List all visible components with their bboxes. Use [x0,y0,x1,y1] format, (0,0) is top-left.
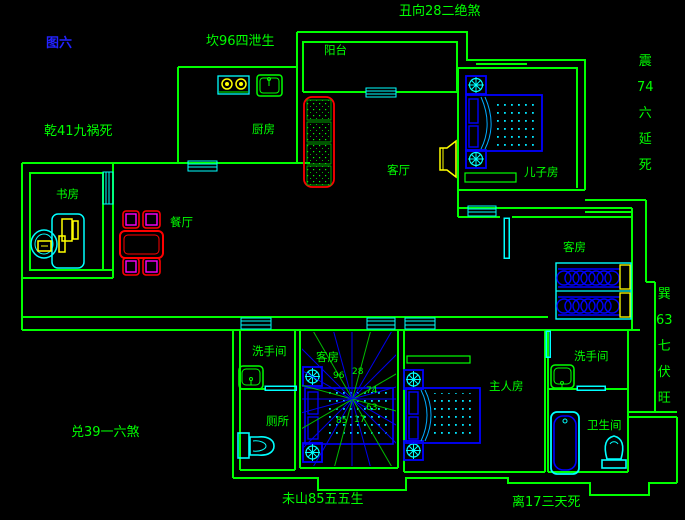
annotation-xun: 巽63七伏旺 [656,288,673,418]
room-label-master-room: 主人房 [489,380,524,393]
hall-window [241,318,271,329]
balcony-window [366,88,396,97]
annotation-wei: 未山85五五生 [282,493,364,507]
sons-room-nightstand [466,76,486,94]
floor-plan-canvas: 图六 丑向28二绝煞 坎96四泄生 乾41九祸死 兑39一六煞 未山85五五生 … [0,0,685,520]
room-label-kitchen: 厨房 [252,123,275,136]
sons-room-dresser [465,173,516,182]
room-label-balcony: 阳台 [324,44,347,57]
sons-room-nightstand [466,150,486,168]
master-bed [406,388,480,443]
dining-chair [123,258,139,275]
bathtub [551,412,579,474]
guest-bed-pillow [620,293,630,317]
annotation-chou-top: 丑向28二绝煞 [399,5,481,19]
sons-bed [466,95,542,151]
guest-room-door [504,218,509,258]
dining-table [120,231,163,258]
compass-number: 28 [352,368,363,377]
room-label-bathroom: 卫生间 [587,419,622,432]
dining-chair [143,211,160,228]
toilet-left [238,433,274,458]
guest-bed-pillow [620,265,630,289]
sofa [304,97,334,187]
compass-number: 63 [366,404,377,413]
stairs-room-window [367,318,395,329]
room-label-guest-room-right: 客房 [563,241,586,254]
room-label-toilet: 厕所 [266,415,289,428]
floor-plan-drawing [0,0,685,520]
kitchen-sink [257,75,282,96]
annotation-li: 离17三天死 [512,496,581,510]
windows [103,88,496,329]
compass-number: 85 [336,417,347,426]
master-room-window [405,318,435,329]
compass-number: 17 [354,416,365,425]
room-label-living-room: 客厅 [387,164,410,177]
annotation-zhen: 震74六延死 [637,55,654,185]
study-window [103,172,113,204]
room-label-washroom-left: 洗手间 [252,345,287,358]
figure-title: 图六 [46,37,72,51]
annotation-dui: 兑39一六煞 [71,426,140,440]
room-label-study: 书房 [56,188,79,201]
room-label-washroom-right: 洗手间 [574,350,609,363]
master-shelf [407,356,470,363]
annotation-kan: 坎96四泄生 [206,35,275,49]
bathroom-door [577,386,605,390]
master-nightstand [404,370,423,389]
stove [218,76,249,94]
dining-chairs [123,211,160,275]
guest-beds [556,263,631,319]
toilet-right [602,436,626,468]
room-label-sons-room: 儿子房 [524,166,559,179]
doors [265,218,605,390]
washroom-left-sink [239,366,263,389]
compass-number: 96 [333,372,344,381]
washroom-left-door [265,386,296,390]
dining-chair [123,211,139,228]
washroom-right-sink [551,365,574,390]
dining-chair [143,258,160,275]
room-label-dining-room: 餐厅 [170,216,193,229]
study-computer [38,219,78,252]
annotation-qian: 乾41九祸死 [44,125,113,139]
compass-number: 74 [366,387,377,396]
tv [440,141,456,177]
room-label-guest-room-center: 客房 [316,351,339,364]
